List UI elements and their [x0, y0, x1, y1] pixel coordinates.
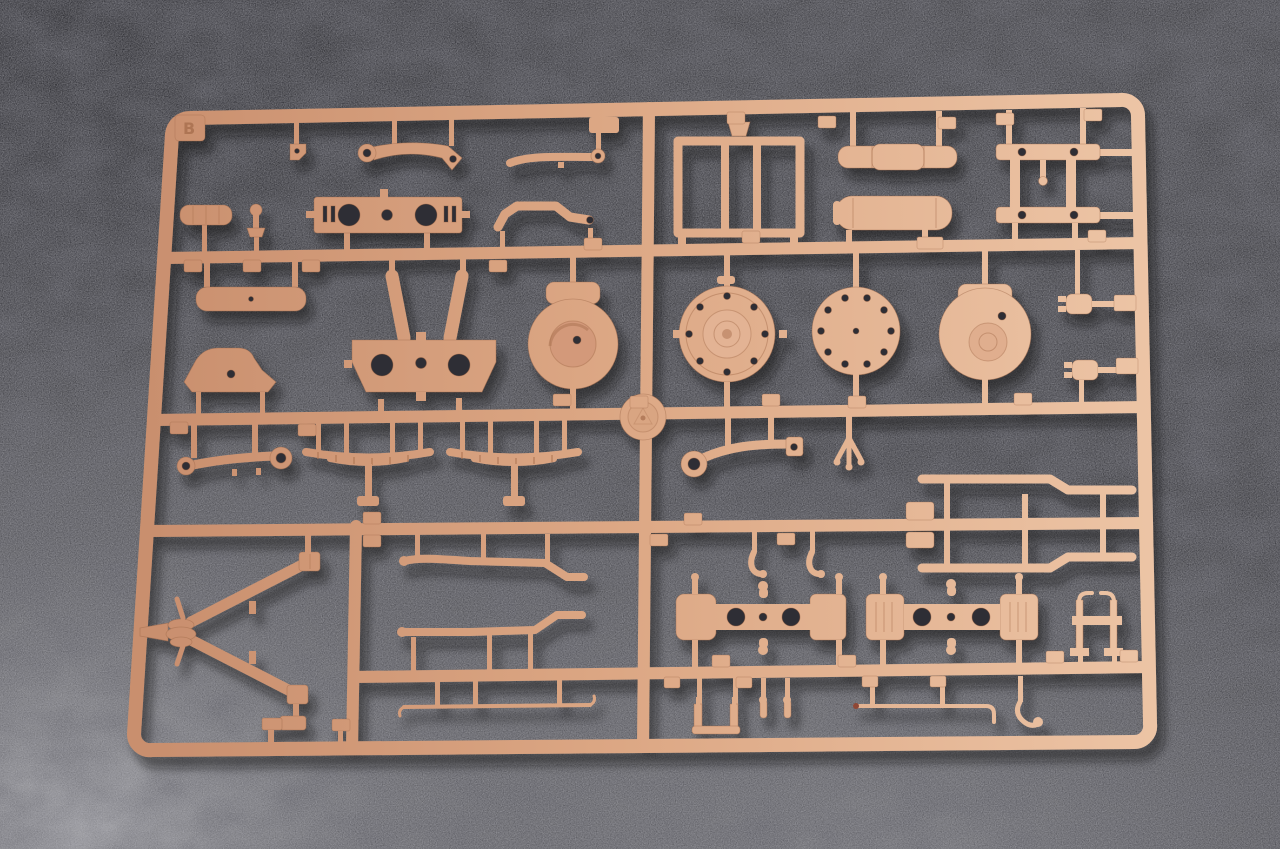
part-number-tab: [184, 260, 202, 272]
part-number-tab: [243, 260, 261, 272]
part-number-tab: [930, 676, 946, 687]
part-number-tab: [917, 237, 943, 249]
part-number-tab: [712, 655, 730, 667]
part-number-tab: [298, 424, 316, 436]
part-number-tab: [650, 534, 668, 546]
part-number-tab: [777, 533, 795, 545]
part-number-tab: [489, 260, 507, 272]
photo-model-kit-sprue: B: [0, 0, 1280, 849]
part-number-tab: [553, 394, 571, 406]
part-number-tab: [332, 719, 350, 731]
part-number-tab: [1014, 393, 1032, 405]
sprue-photo: B: [0, 0, 1280, 849]
part-number-tab: [727, 112, 745, 124]
part-number-tab: [1046, 651, 1064, 663]
part-number-tab: [736, 677, 752, 688]
runner-v-left: [352, 526, 356, 748]
part-number-tab: [848, 396, 866, 408]
part-number-tab: [838, 655, 856, 667]
part-number-tab: [818, 116, 836, 128]
sprue-letter-tab: B: [175, 115, 205, 141]
part-number-tab: [664, 677, 680, 688]
sprue-letter: B: [183, 119, 195, 138]
part-number-tab: [996, 113, 1014, 125]
part-number-tab: [684, 513, 702, 525]
part-number-tab: [742, 231, 760, 243]
part-number-tab: [1120, 650, 1138, 662]
part-number-tab: [363, 512, 381, 524]
part-number-tab: [302, 260, 320, 272]
part-number-tab: [906, 502, 934, 520]
part-number-tab: [363, 535, 381, 547]
part-number-tab: [938, 117, 956, 129]
part-number-tab: [1084, 109, 1102, 121]
part-number-tab: [1088, 230, 1106, 242]
part-number-tab: [170, 422, 188, 434]
part-number-tab: [584, 238, 602, 250]
part-number-tab: [862, 676, 878, 687]
part-number-tab: [906, 532, 934, 548]
part-number-tab: [762, 394, 780, 406]
part-number-tab: [630, 396, 648, 408]
